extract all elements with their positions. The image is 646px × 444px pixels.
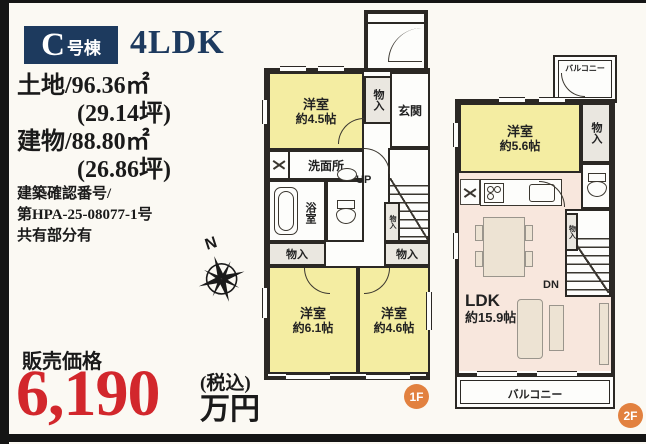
- compass-rose-icon: N: [183, 231, 253, 307]
- svg-text:N: N: [203, 234, 219, 254]
- property-flyer: C 号棟 4LDK 土地/96.36㎡ (29.14坪) 建物/88.80㎡ (…: [0, 0, 646, 444]
- toilet-room-1f: [326, 180, 364, 242]
- window: [318, 66, 344, 72]
- bathroom: 浴室: [268, 180, 326, 242]
- frame-bottom-border: [9, 434, 646, 442]
- sink-icon: [337, 168, 357, 181]
- price-unit-block: (税込) 万円: [200, 374, 260, 425]
- closet-east: 物入: [384, 242, 430, 266]
- window: [477, 371, 517, 377]
- refrigerator-icon: [460, 179, 480, 205]
- dining-table: [483, 217, 525, 277]
- sofa: [517, 299, 543, 359]
- washing-machine-icon: [268, 150, 290, 180]
- low-table: [549, 305, 564, 351]
- frame-top-border: [0, 0, 646, 3]
- porch-step: [368, 22, 424, 24]
- toilet-room-2f: [581, 163, 611, 209]
- permit-block: 建築確認番号/ 第HPA-25-08077-1号 共有部分有: [17, 184, 153, 247]
- building-area: 建物/88.80㎡: [17, 128, 171, 156]
- window: [453, 233, 459, 259]
- price-unit: 万円: [200, 395, 260, 425]
- floor-badge-2f: 2F: [618, 403, 643, 428]
- price-tax-note: (税込): [200, 374, 260, 393]
- permit-number: 第HPA-25-08077-1号: [17, 205, 153, 226]
- entrance-genkan: 玄関: [390, 72, 430, 148]
- floor-badge-1f: 1F: [404, 384, 429, 409]
- chair: [525, 225, 533, 241]
- unit-suffix: 号棟: [67, 34, 101, 57]
- closet-entry: 物入: [364, 76, 392, 124]
- shared-note: 共有部分有: [17, 226, 153, 247]
- ldk-label: LDK 約15.9帖: [465, 291, 516, 326]
- window: [499, 97, 525, 103]
- closet-west: 物入: [268, 242, 326, 266]
- bathtub-icon: [274, 187, 298, 235]
- tv-board: [599, 303, 609, 365]
- window: [286, 374, 330, 380]
- balcony-label: バルコニー: [457, 386, 613, 402]
- room-size: 約4.6帖: [374, 321, 415, 335]
- chair: [475, 251, 483, 267]
- window: [539, 97, 565, 103]
- window: [453, 123, 459, 147]
- stairs-up-label: UP: [356, 174, 371, 186]
- stairs-down-label: DN: [543, 279, 559, 291]
- balcony-bottom: バルコニー: [455, 375, 615, 409]
- window: [366, 374, 410, 380]
- balcony-top: バルコニー: [553, 55, 617, 103]
- room-size: 約6.1帖: [293, 321, 334, 335]
- window: [262, 288, 268, 318]
- window: [280, 66, 306, 72]
- room-name: 洋室: [381, 306, 407, 321]
- unit-letter: C: [41, 29, 65, 62]
- price-amount: 6,190: [16, 358, 160, 431]
- layout-type: 4LDK: [130, 24, 225, 62]
- room-name: 玄関: [398, 102, 422, 119]
- unit-badge: C 号棟: [24, 26, 118, 64]
- building-area-tsubo: (26.86坪): [17, 156, 171, 184]
- room-name: 洋室: [303, 97, 329, 112]
- floorplan-1f: 洋室 約4.5帖 物入 玄関 洗面所 浴室 UP 物入 物入: [260, 6, 436, 388]
- toilet-icon: [335, 200, 355, 224]
- toilet-icon: [586, 173, 606, 197]
- closet-stair-2f: 物入: [565, 213, 578, 251]
- land-area-tsubo: (29.14坪): [17, 100, 171, 128]
- room-name: 浴室: [302, 190, 318, 236]
- room-size: 約5.6帖: [500, 139, 541, 153]
- room-name: 洋室: [300, 306, 326, 321]
- window: [537, 371, 577, 377]
- land-area: 土地/96.36㎡: [17, 72, 171, 100]
- window: [426, 292, 432, 330]
- room-size: 約15.9帖: [465, 310, 516, 326]
- room-name: LDK: [465, 291, 516, 310]
- chair: [525, 251, 533, 267]
- frame-left-border: [0, 0, 9, 444]
- chair: [475, 225, 483, 241]
- floorplan-2f: バルコニー 洋室 約5.6帖 物入 LDK 約15.9帖: [453, 53, 625, 415]
- closet-stair: 物入: [384, 202, 400, 242]
- stove-icon: [484, 183, 504, 203]
- room-name: 洋室: [507, 124, 533, 139]
- window: [262, 100, 268, 124]
- area-spec: 土地/96.36㎡ (29.14坪) 建物/88.80㎡ (26.86坪): [17, 72, 171, 184]
- room-size: 約4.5帖: [296, 112, 337, 126]
- room-western-5-6: 洋室 約5.6帖: [459, 103, 581, 173]
- closet-2f: 物入: [581, 103, 611, 163]
- permit-label: 建築確認番号/: [17, 184, 153, 205]
